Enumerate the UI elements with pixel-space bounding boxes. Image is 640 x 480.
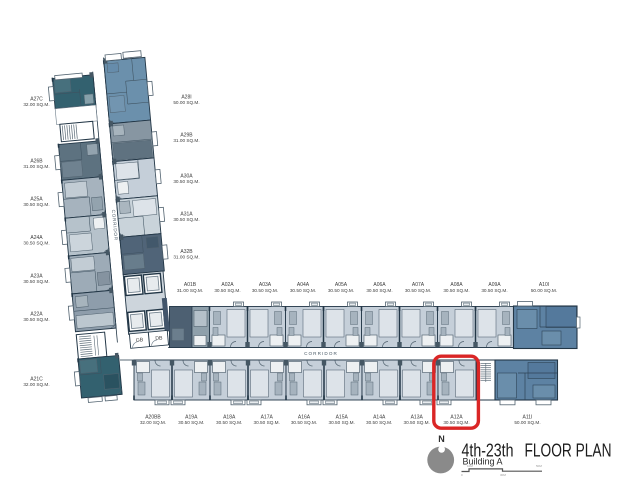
svg-text:30.50 SQ.M.: 30.50 SQ.M. bbox=[328, 288, 354, 293]
svg-text:50M: 50M bbox=[536, 464, 542, 468]
svg-text:DB: DB bbox=[155, 335, 163, 342]
svg-text:30.50 SQ.M.: 30.50 SQ.M. bbox=[252, 288, 278, 293]
svg-text:30.50 SQ.M.: 30.50 SQ.M. bbox=[443, 420, 469, 425]
svg-text:31.00 SQ.M.: 31.00 SQ.M. bbox=[173, 255, 199, 260]
svg-text:50.00 SQ.M.: 50.00 SQ.M. bbox=[514, 420, 540, 425]
svg-text:31.00 SQ.M.: 31.00 SQ.M. bbox=[177, 288, 203, 293]
svg-text:30.50 SQ.M.: 30.50 SQ.M. bbox=[404, 420, 430, 425]
svg-text:32.00 SQ.M.: 32.00 SQ.M. bbox=[23, 382, 49, 387]
svg-text:31.00 SQ.M.: 31.00 SQ.M. bbox=[23, 164, 49, 169]
svg-text:30.50 SQ.M.: 30.50 SQ.M. bbox=[23, 317, 49, 322]
svg-text:30.50 SQ.M.: 30.50 SQ.M. bbox=[23, 279, 49, 284]
svg-text:30.50 SQ.M.: 30.50 SQ.M. bbox=[329, 420, 355, 425]
svg-text:30.50 SQ.M.: 30.50 SQ.M. bbox=[481, 288, 507, 293]
svg-text:30.50 SQ.M.: 30.50 SQ.M. bbox=[23, 241, 49, 246]
svg-text:GB: GB bbox=[136, 337, 145, 344]
svg-text:30.50 SQ.M.: 30.50 SQ.M. bbox=[23, 202, 49, 207]
svg-text:30.50 SQ.M.: 30.50 SQ.M. bbox=[290, 288, 316, 293]
svg-text:10M: 10M bbox=[467, 464, 473, 468]
svg-text:30.50 SQ.M.: 30.50 SQ.M. bbox=[366, 420, 392, 425]
svg-text:30.50 SQ.M.: 30.50 SQ.M. bbox=[178, 420, 204, 425]
svg-text:50.00 SQ.M.: 50.00 SQ.M. bbox=[173, 100, 199, 105]
svg-text:FLOOR PLAN: FLOOR PLAN bbox=[525, 441, 612, 461]
svg-text:32.00 SQ.M.: 32.00 SQ.M. bbox=[140, 420, 166, 425]
svg-text:30.50 SQ.M.: 30.50 SQ.M. bbox=[214, 288, 240, 293]
svg-text:30M: 30M bbox=[500, 473, 506, 477]
svg-text:30.50 SQ.M.: 30.50 SQ.M. bbox=[173, 179, 199, 184]
svg-text:32.00 SQ.M.: 32.00 SQ.M. bbox=[23, 102, 49, 107]
svg-text:30.50 SQ.M.: 30.50 SQ.M. bbox=[443, 288, 469, 293]
svg-text:50.00 SQ.M.: 50.00 SQ.M. bbox=[531, 288, 557, 293]
svg-text:30.50 SQ.M.: 30.50 SQ.M. bbox=[405, 288, 431, 293]
svg-text:CORRIDOR: CORRIDOR bbox=[304, 351, 338, 356]
svg-text:30.50 SQ.M.: 30.50 SQ.M. bbox=[254, 420, 280, 425]
svg-text:30.50 SQ.M.: 30.50 SQ.M. bbox=[216, 420, 242, 425]
svg-text:31.00 SQ.M.: 31.00 SQ.M. bbox=[173, 138, 199, 143]
svg-text:30.50 SQ.M.: 30.50 SQ.M. bbox=[173, 217, 199, 222]
svg-text:N: N bbox=[438, 434, 445, 444]
svg-text:30.50 SQ.M.: 30.50 SQ.M. bbox=[366, 288, 392, 293]
svg-text:30.50 SQ.M.: 30.50 SQ.M. bbox=[291, 420, 317, 425]
